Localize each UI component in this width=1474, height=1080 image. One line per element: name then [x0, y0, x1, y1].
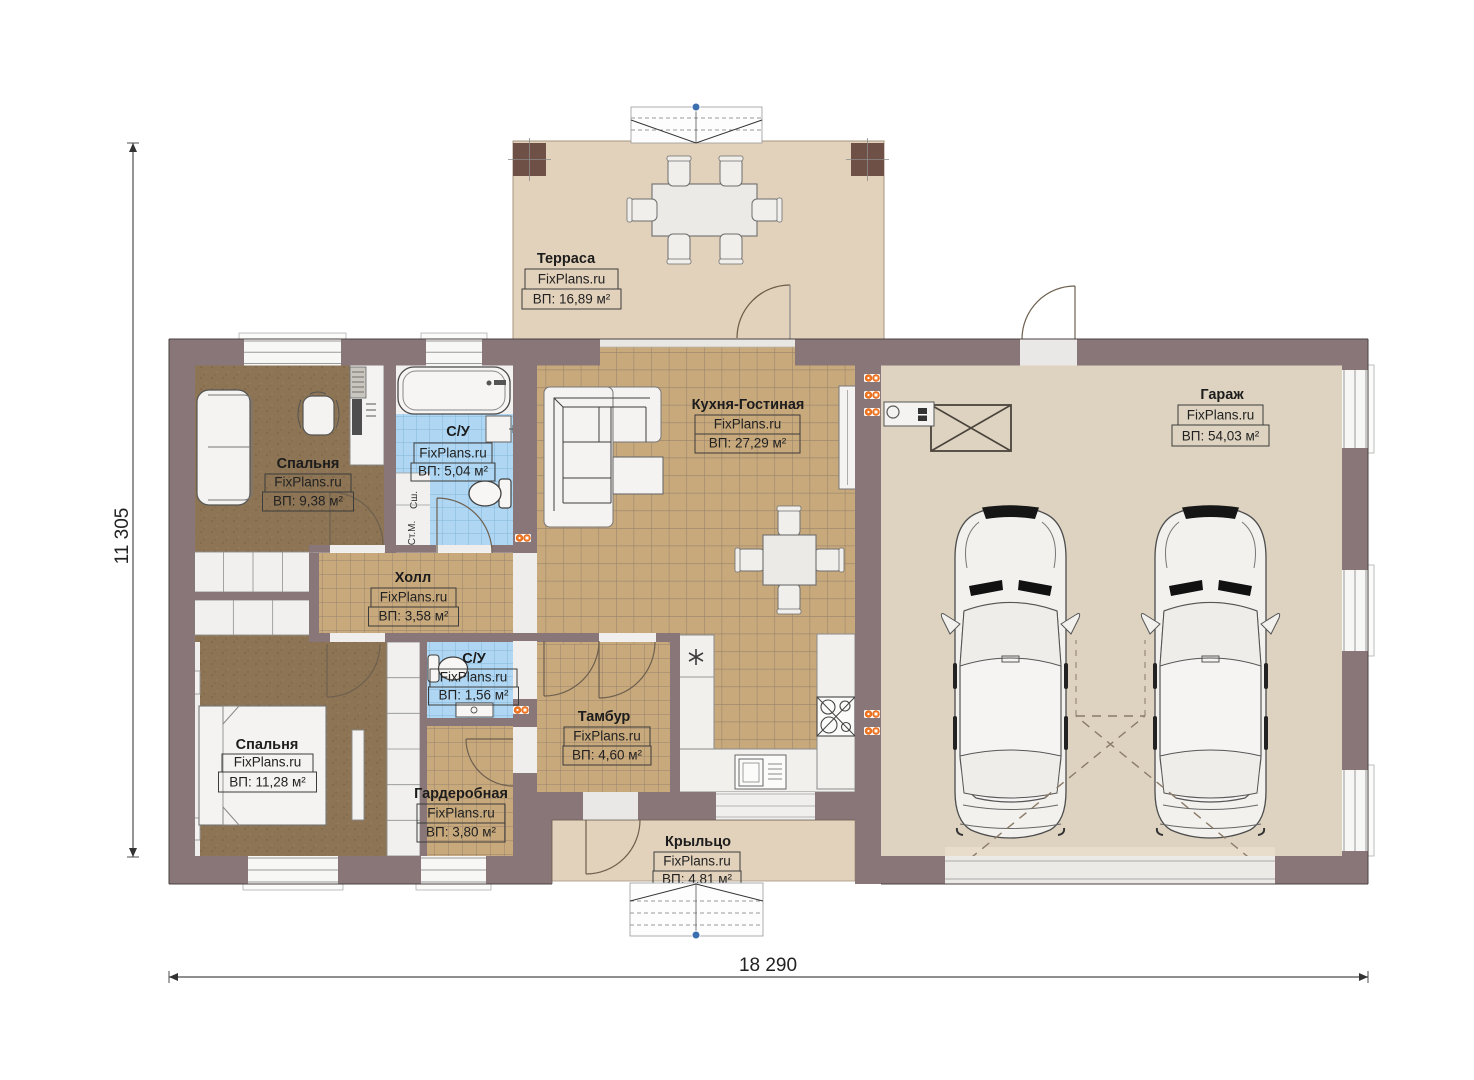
svg-text:18 290: 18 290	[739, 955, 797, 976]
svg-text:ВП: 1,56 м²: ВП: 1,56 м²	[438, 688, 509, 703]
svg-text:FixPlans.ru: FixPlans.ru	[538, 272, 606, 287]
svg-text:11 305: 11 305	[112, 508, 133, 565]
svg-text:Спальня: Спальня	[236, 737, 299, 753]
svg-text:ВП: 3,58 м²: ВП: 3,58 м²	[378, 609, 449, 624]
svg-text:ВП: 54,03 м²: ВП: 54,03 м²	[1182, 429, 1260, 444]
svg-text:FixPlans.ru: FixPlans.ru	[419, 446, 487, 461]
svg-text:Гардеробная: Гардеробная	[414, 786, 508, 802]
svg-text:FixPlans.ru: FixPlans.ru	[234, 755, 302, 770]
svg-text:ВП: 16,89 м²: ВП: 16,89 м²	[533, 292, 611, 307]
svg-text:FixPlans.ru: FixPlans.ru	[427, 806, 495, 821]
svg-text:FixPlans.ru: FixPlans.ru	[573, 729, 641, 744]
svg-text:FixPlans.ru: FixPlans.ru	[1187, 408, 1255, 423]
svg-text:FixPlans.ru: FixPlans.ru	[440, 670, 508, 685]
svg-text:FixPlans.ru: FixPlans.ru	[380, 590, 448, 605]
svg-text:FixPlans.ru: FixPlans.ru	[714, 417, 782, 432]
svg-text:ВП: 4,60 м²: ВП: 4,60 м²	[572, 748, 643, 763]
svg-text:FixPlans.ru: FixPlans.ru	[274, 475, 342, 490]
svg-text:Гараж: Гараж	[1200, 387, 1244, 403]
svg-text:ВП: 11,28 м²: ВП: 11,28 м²	[229, 775, 306, 790]
svg-text:Спальня: Спальня	[277, 456, 340, 472]
svg-text:ВП: 5,04 м²: ВП: 5,04 м²	[418, 464, 489, 479]
svg-text:ВП: 9,38 м²: ВП: 9,38 м²	[273, 494, 344, 509]
svg-text:Кухня-Гостиная: Кухня-Гостиная	[692, 397, 805, 413]
svg-text:С/У: С/У	[462, 651, 487, 667]
svg-text:С/У: С/У	[446, 424, 471, 440]
svg-text:Тамбур: Тамбур	[578, 709, 631, 725]
svg-text:Крыльцо: Крыльцо	[665, 834, 731, 850]
svg-text:Ст.М.: Ст.М.	[407, 521, 418, 546]
svg-text:Сш.: Сш.	[409, 491, 420, 509]
svg-text:FixPlans.ru: FixPlans.ru	[663, 854, 731, 869]
svg-text:ВП: 27,29 м²: ВП: 27,29 м²	[709, 436, 787, 451]
svg-text:ВП: 3,80 м²: ВП: 3,80 м²	[426, 825, 497, 840]
svg-text:Терраса: Терраса	[537, 251, 596, 267]
svg-text:Холл: Холл	[395, 570, 431, 586]
